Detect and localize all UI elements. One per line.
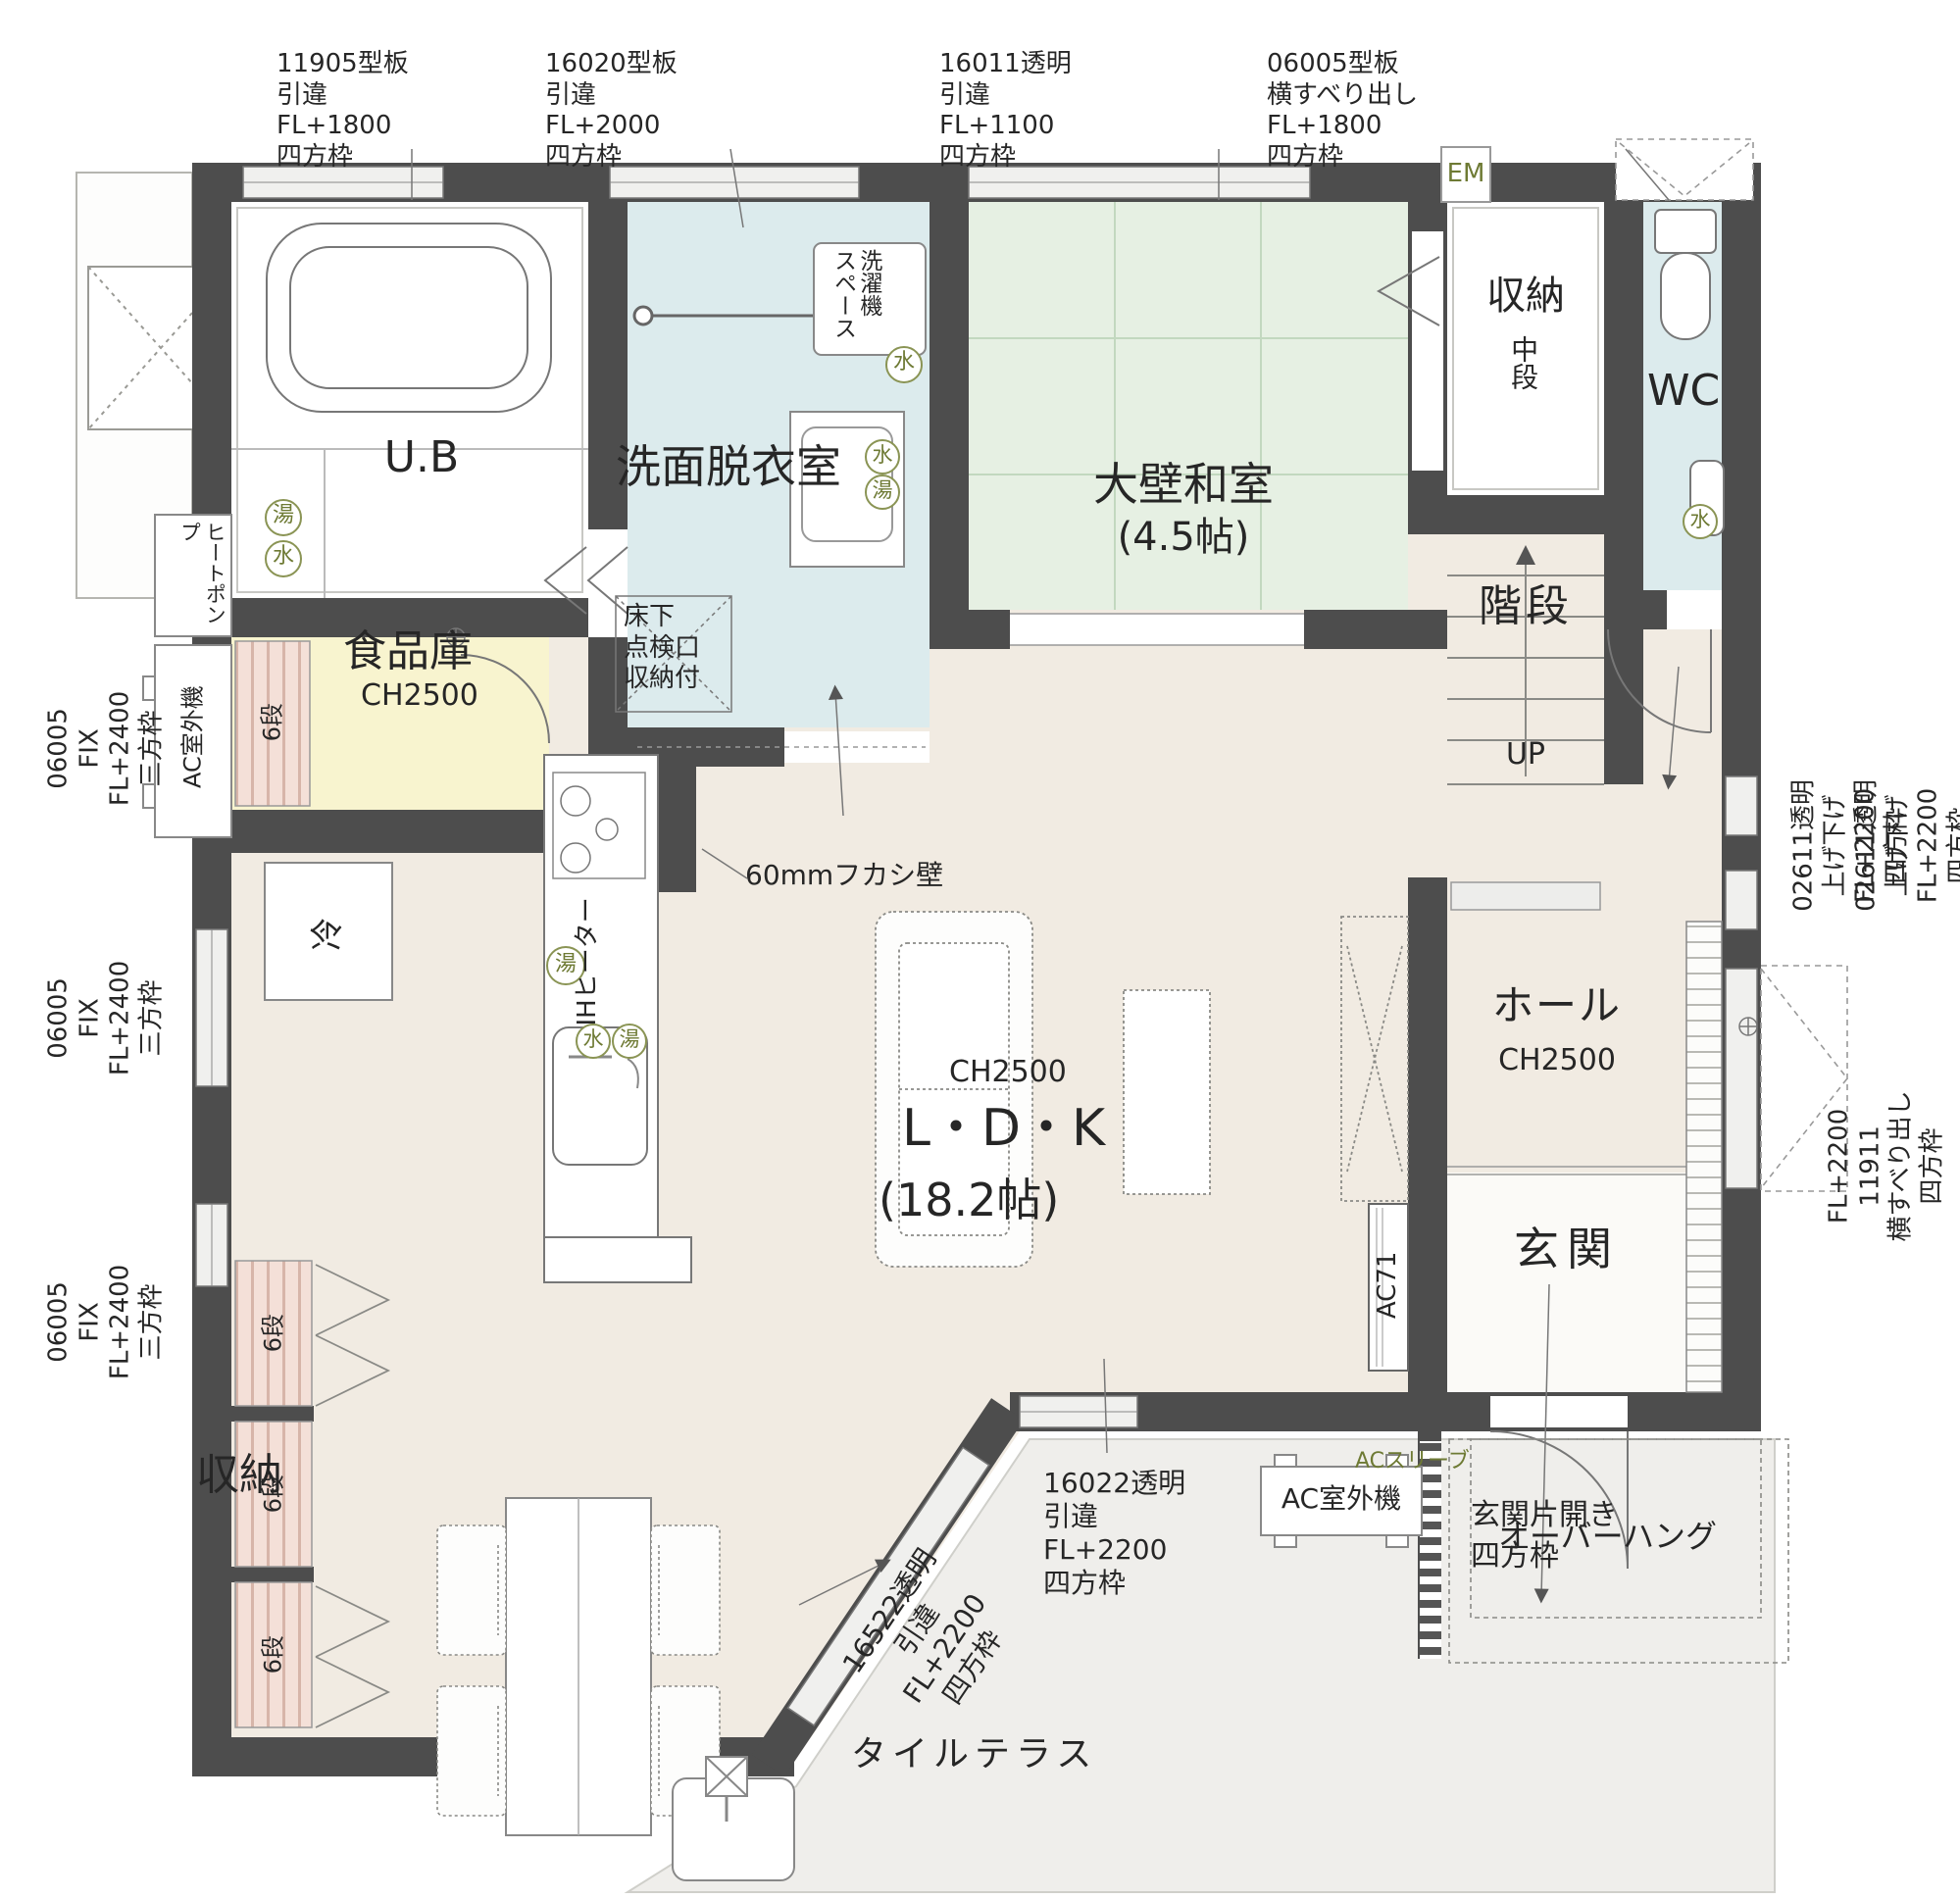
label-stairs-up: UP: [1477, 737, 1575, 774]
window-02611-a: [1726, 776, 1757, 835]
label-room-ldk: L・D・K: [902, 1098, 1105, 1160]
label-ldk-ch: CH2500: [949, 1055, 1067, 1091]
tv-board: [1124, 990, 1210, 1194]
annotation-16022: 16022透明 引違 FL+2200 四方枠: [1043, 1467, 1185, 1601]
hot-icon-vanity: 湯: [865, 478, 900, 504]
water-icon-ub: 水: [266, 544, 301, 571]
water-icon-vanity: 水: [865, 443, 900, 469]
label-room-washitsu-size: (4.5帖): [1061, 514, 1306, 562]
label-ac-outdoor-bottom: AC室外機: [1267, 1482, 1416, 1516]
dining-table: [506, 1498, 651, 1835]
annotation-11911: FL+2200 11911 横すべり出し 四方枠: [1825, 999, 1949, 1332]
label-pantry-ch: CH2500: [361, 678, 478, 715]
bathtub: [267, 224, 551, 412]
hinge-marker-hall: [1739, 1018, 1757, 1035]
label-em: EM: [1441, 159, 1490, 190]
label-room-senmen: 洗面脱衣室: [616, 439, 841, 494]
label-ac-sleeve: ACスリーブ: [1355, 1449, 1470, 1475]
label-room-storage-top: 収納: [1457, 273, 1594, 321]
annotation-window-11905: 11905型板 引違 FL+1800 四方枠: [276, 49, 409, 174]
fukashi-wall: [657, 727, 696, 892]
window-11911: [1726, 969, 1757, 1188]
label-room-wc: WC: [1647, 365, 1718, 418]
label-laundry-space: 洗濯機 スペース: [829, 249, 881, 351]
floor-plan: 11905型板 引違 FL+1800 四方枠 16020型板 引違 FL+200…: [0, 0, 1960, 1899]
label-ac71: AC71: [1373, 1226, 1404, 1344]
label-shelf-6dan-1: 6段: [259, 1304, 287, 1363]
label-pantry-shelf-6dan: 6段: [258, 693, 286, 752]
label-room-pantry: 食品庫: [343, 625, 473, 678]
cased-opening-hall: [1451, 882, 1600, 910]
label-overhang: オーバーハング: [1498, 1518, 1717, 1556]
label-shelf-6dan-3: 6段: [259, 1625, 287, 1684]
annotation-window-16020: 16020型板 引違 FL+2000 四方枠: [545, 49, 678, 174]
label-room-genkan: 玄関: [1479, 1222, 1655, 1276]
hot-icon-ub: 湯: [266, 503, 301, 529]
label-fridge: 冷: [308, 900, 348, 969]
annotation-fix-2: 06005 FIX FL+2400 三方枠: [44, 910, 169, 1125]
toilet: [1655, 210, 1716, 339]
hot-icon-sink: 湯: [612, 1027, 647, 1053]
label-room-stairs: 階段: [1449, 580, 1602, 633]
hot-icon-kitchen: 湯: [548, 952, 583, 978]
annotation-fix-3: 06005 FIX FL+2400 三方枠: [44, 1214, 169, 1429]
label-storage-chudan: 中段: [1506, 335, 1539, 390]
label-underfloor-hatch: 床下 点検口 収納付: [624, 602, 700, 695]
label-room-washitsu: 大壁和室: [1061, 457, 1306, 512]
shoe-cabinet: [1686, 922, 1722, 1392]
label-heat-pump: ヒートポンプ: [176, 522, 226, 631]
label-ac-outdoor-left: AC室外機: [178, 654, 207, 821]
window-02611-b: [1726, 871, 1757, 929]
annotation-window-06005-top: 06005型板 横すべり出し FL+1800 四方枠: [1267, 49, 1418, 174]
label-room-hall: ホール: [1469, 980, 1645, 1030]
annotation-fix-1: 06005 FIX FL+2400 三方枠: [44, 640, 169, 856]
water-icon-wc: 水: [1683, 508, 1718, 533]
label-shelf-6dan-2: 6段: [259, 1465, 287, 1524]
label-room-ub: U.B: [348, 431, 495, 484]
label-room-ldk-size: (18.2帖): [879, 1173, 1059, 1227]
water-icon-sink: 水: [576, 1027, 611, 1053]
annotation-02611-b: 02611透明 上げ下げ FL+2200 四方枠: [1852, 698, 1960, 992]
annotation-window-16011: 16011透明 引違 FL+1100 四方枠: [939, 49, 1072, 174]
water-icon-laundry: 水: [886, 350, 922, 376]
label-hall-ch: CH2500: [1469, 1043, 1645, 1079]
label-fukashi-wall: 60mmフカシ壁: [745, 859, 943, 892]
top-casement-box: [1616, 139, 1753, 200]
room-genkan-floor: [1447, 1173, 1686, 1392]
label-terrace: タイルテラス: [851, 1733, 1097, 1776]
